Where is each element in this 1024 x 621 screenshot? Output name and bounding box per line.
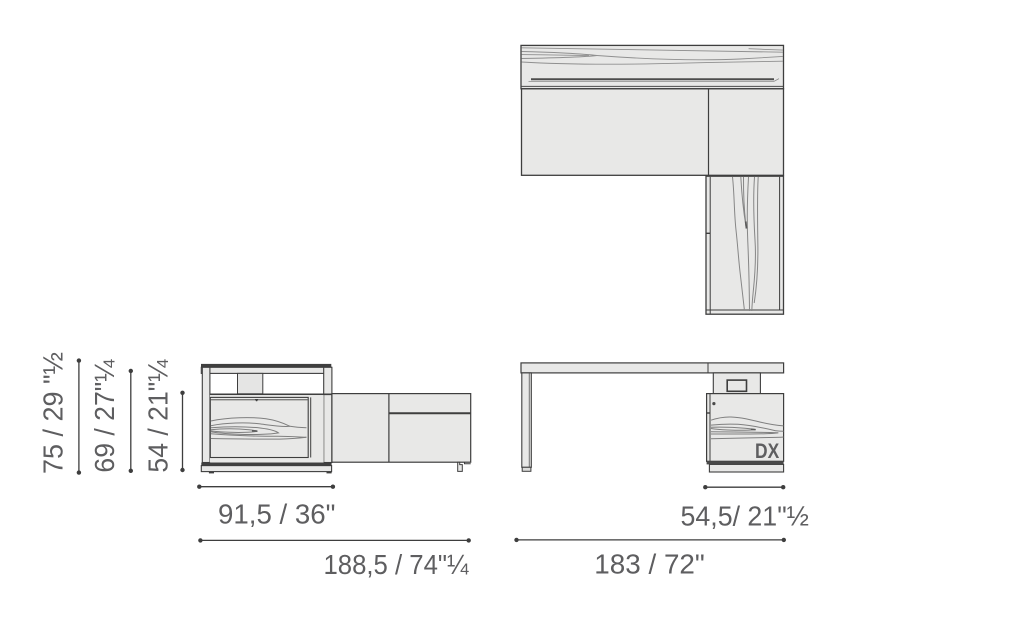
svg-text:DX: DX	[755, 440, 779, 463]
svg-text:69 / 27"¼: 69 / 27"¼	[89, 359, 120, 473]
svg-text:188,5 / 74"¼: 188,5 / 74"¼	[324, 549, 470, 580]
svg-text:183 / 72": 183 / 72"	[594, 548, 705, 579]
svg-text:75 / 29 "½: 75 / 29 "½	[38, 352, 69, 474]
svg-text:54 / 21"¼: 54 / 21"¼	[142, 359, 173, 473]
svg-text:54,5/ 21"½: 54,5/ 21"½	[681, 501, 810, 532]
svg-text:91,5 / 36": 91,5 / 36"	[218, 499, 336, 530]
